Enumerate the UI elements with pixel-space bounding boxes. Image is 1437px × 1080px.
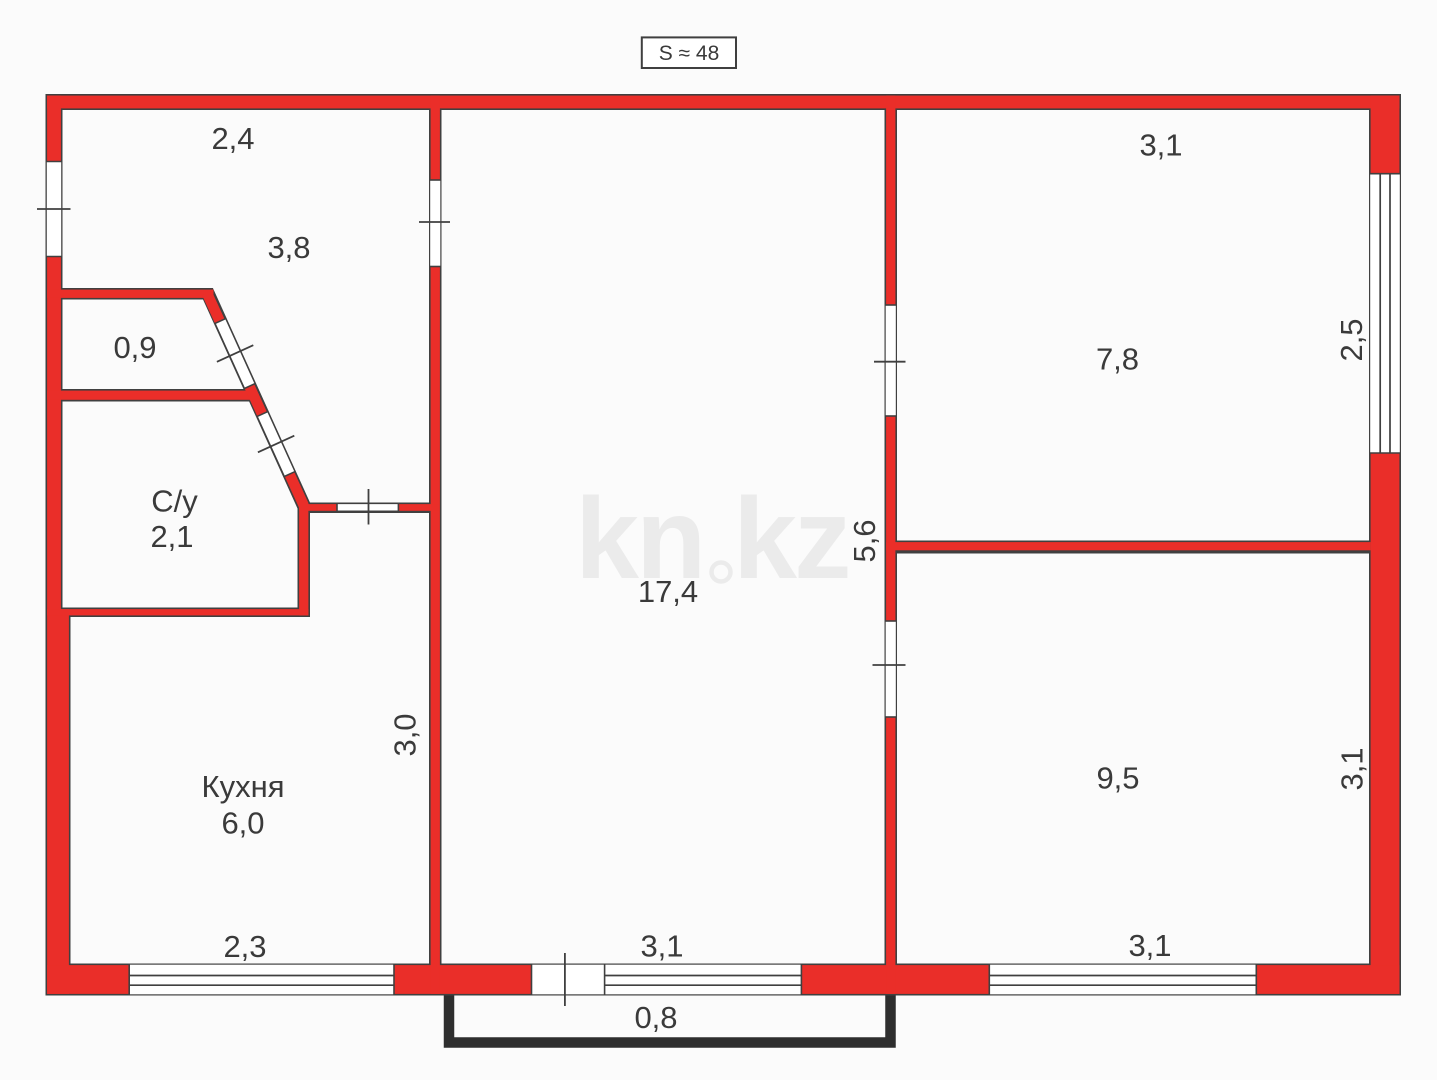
svg-text:2,1: 2,1 [150,519,193,554]
svg-text:3,8: 3,8 [267,230,310,265]
svg-text:Кухня: Кухня [202,769,285,804]
svg-text:7,8: 7,8 [1096,342,1139,377]
svg-text:3,1: 3,1 [1139,128,1182,163]
svg-text:3,0: 3,0 [388,713,423,756]
svg-text:0,8: 0,8 [634,1000,677,1035]
svg-text:С/у: С/у [151,484,198,519]
svg-text:3,1: 3,1 [640,929,683,964]
svg-text:9,5: 9,5 [1096,761,1139,796]
svg-text:2,5: 2,5 [1334,318,1369,361]
svg-text:kz: kz [733,475,848,603]
svg-text:3,1: 3,1 [1128,928,1171,963]
svg-text:2,3: 2,3 [223,929,266,964]
svg-text:17,4: 17,4 [638,574,698,609]
svg-text:S ≈ 48: S ≈ 48 [659,42,720,65]
svg-text:2,4: 2,4 [211,121,254,156]
svg-text:5,6: 5,6 [847,519,882,562]
svg-text:0,9: 0,9 [113,330,156,365]
svg-text:6,0: 6,0 [221,806,264,841]
svg-text:3,1: 3,1 [1334,747,1369,790]
